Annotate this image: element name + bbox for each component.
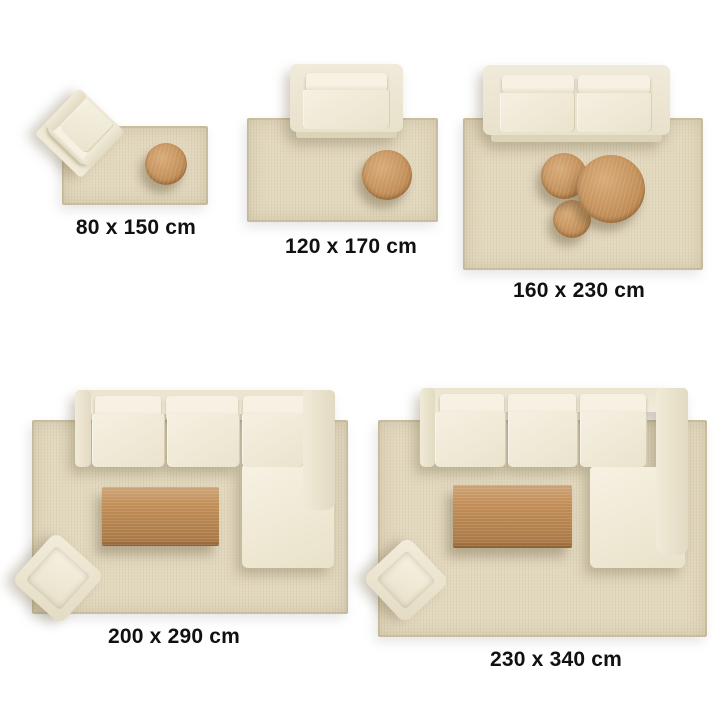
rectangular-coffee-table: [102, 487, 219, 546]
sofa-corner-seat: [580, 412, 647, 467]
sofa-seat-cushion-1: [92, 414, 165, 467]
nesting-table-large: [577, 155, 645, 223]
round-side-table: [145, 143, 187, 185]
sofa-seat-cushion-2: [508, 412, 578, 467]
loveseat-sofa: [290, 64, 403, 138]
ottoman-cushion: [376, 550, 435, 609]
size-label-120x170: 120 x 170 cm: [285, 236, 417, 258]
sofa-corner-seat: [242, 414, 304, 467]
sofa-seat-cushion-right: [577, 93, 652, 132]
size-label-200x290: 200 x 290 cm: [108, 626, 240, 648]
sofa-right-arm: [303, 390, 335, 510]
sofa-left-arm: [420, 388, 435, 467]
sofa-seat-cushion-left: [500, 93, 575, 132]
two-seat-sofa: [483, 65, 670, 142]
size-label-80x150: 80 x 150 cm: [76, 217, 196, 239]
size-label-230x340: 230 x 340 cm: [490, 649, 622, 671]
round-coffee-table: [362, 150, 412, 200]
sofa-left-arm: [75, 390, 91, 467]
size-label-160x230: 160 x 230 cm: [513, 280, 645, 302]
sofa-seat-cushion-2: [167, 414, 240, 467]
rug-size-guide: 80 x 150 cm 120 x 170 cm 160 x 230 cm: [0, 0, 720, 720]
sofa-seat-cushion: [303, 90, 390, 129]
rectangular-coffee-table: [453, 485, 572, 548]
sofa-seat-cushion-1: [435, 412, 506, 467]
ottoman-cushion: [26, 546, 91, 611]
sofa-right-arm: [656, 388, 688, 555]
